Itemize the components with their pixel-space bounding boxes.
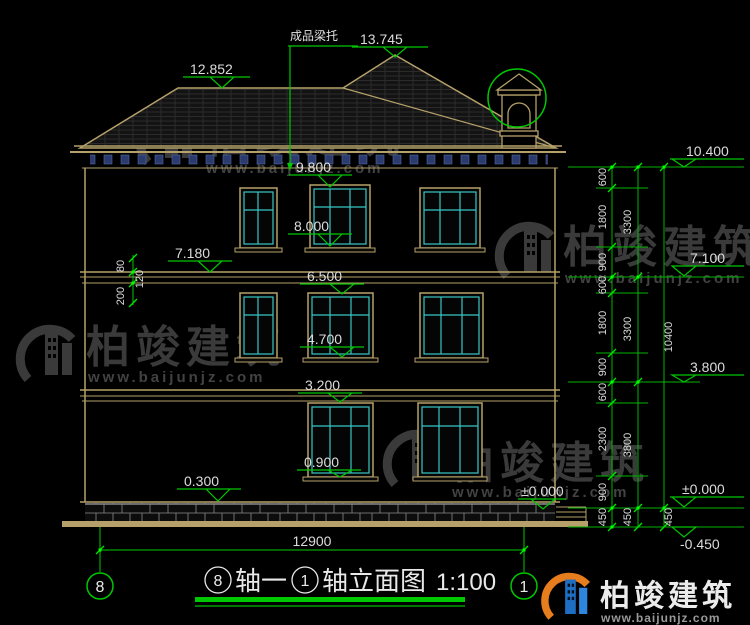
window-3f-right — [415, 188, 485, 252]
dim-chain1-8: 900 — [597, 483, 609, 501]
roof-note-label: 成品梁托 — [290, 28, 338, 43]
dim-chain1-4: 1800 — [597, 311, 609, 335]
title-mid: 轴一 — [235, 566, 287, 596]
elev-apex: 13.745 — [360, 31, 403, 47]
watermark-url: www.baijunjz.com — [564, 270, 742, 287]
ground-line — [62, 521, 588, 527]
left-dim-200: 200 — [115, 287, 127, 305]
left-dim-120: 120 — [134, 270, 146, 288]
dim-chain3-0: 10400 — [663, 322, 675, 353]
window-sill — [415, 248, 485, 252]
elev-third-sill: 8.000 — [294, 218, 329, 234]
elev-band-top: 7.180 — [175, 245, 210, 261]
dim-chain2-0: 3300 — [622, 210, 634, 234]
chimney-base — [500, 131, 538, 136]
left-dim-80: 80 — [115, 260, 127, 272]
dim-chain2-3: 450 — [622, 508, 634, 526]
brand-url: www.baijunjz.com — [600, 611, 721, 625]
title-underline-thick — [195, 597, 465, 602]
dim-chain1-5: 900 — [597, 358, 609, 376]
window-sill — [415, 358, 488, 362]
drawing-canvas: 柏竣建筑 www.baijunjz.com 柏竣建筑 www.baijunjz.… — [0, 0, 750, 625]
plinth-stone-band — [85, 503, 555, 521]
total-width-dim: 12900 — [293, 533, 332, 549]
elev-plinth-top: 0.300 — [184, 473, 219, 489]
dim-chain1-0: 600 — [597, 168, 609, 186]
axis-left-label: 8 — [96, 579, 105, 596]
window-sill — [235, 248, 282, 252]
window-2f-left — [235, 293, 282, 362]
chimney — [497, 74, 541, 148]
brand-name: 柏竣建筑 — [600, 579, 736, 613]
dim-chain3-1: 450 — [663, 508, 675, 526]
plinth — [80, 502, 560, 521]
axis-right-label: 1 — [520, 579, 529, 596]
window-sill — [235, 358, 282, 362]
elev-right-top: 10.400 — [686, 143, 729, 159]
elev-zero-right: ±0.000 — [521, 483, 564, 499]
drawing-title: 8 轴一 1 轴立面图 1:100 — [195, 566, 496, 606]
window-sill — [303, 477, 378, 481]
window-3f-left — [235, 188, 282, 252]
title-suffix: 轴立面图 — [322, 566, 426, 596]
cad-elevation-drawing: 柏竣建筑 www.baijunjz.com 柏竣建筑 www.baijunjz.… — [0, 0, 750, 625]
window-1f-right — [413, 403, 487, 481]
title-axis-to: 1 — [301, 573, 310, 590]
window-sill — [413, 477, 487, 481]
elev-first-sill: 0.900 — [304, 454, 339, 470]
window-sill — [303, 358, 378, 362]
title-axis-from: 8 — [214, 573, 223, 590]
dim-chain1-7: 2300 — [597, 427, 609, 451]
dim-chain1-3: 600 — [597, 276, 609, 294]
dim-chain1-2: 900 — [597, 253, 609, 271]
elev-right-zero: ±0.000 — [682, 481, 725, 497]
chimney-cornice — [498, 90, 540, 95]
window-2f-middle — [303, 293, 378, 362]
elev-right-floor2: 7.100 — [690, 250, 725, 266]
watermark-url: www.baijunjz.com — [87, 369, 265, 386]
elev-right-minus: -0.450 — [680, 536, 720, 552]
elev-second-sill: 4.700 — [307, 331, 342, 347]
elev-ridge: 12.852 — [190, 61, 233, 77]
elev-third-head: 9.800 — [296, 159, 331, 175]
dim-chain1-6: 600 — [597, 383, 609, 401]
elev-second-head: 6.500 — [307, 268, 342, 284]
title-scale: 1:100 — [436, 569, 496, 596]
elev-right-floor1: 3.800 — [690, 359, 725, 375]
window-sill — [305, 248, 375, 252]
dim-chain2-2: 3800 — [622, 433, 634, 457]
window-2f-right — [415, 293, 488, 362]
elev-first-head: 3.200 — [305, 377, 340, 393]
dim-chain1-1: 1800 — [597, 205, 609, 229]
dim-chain2-1: 3300 — [622, 317, 634, 341]
dim-chain1-9: 450 — [597, 508, 609, 526]
